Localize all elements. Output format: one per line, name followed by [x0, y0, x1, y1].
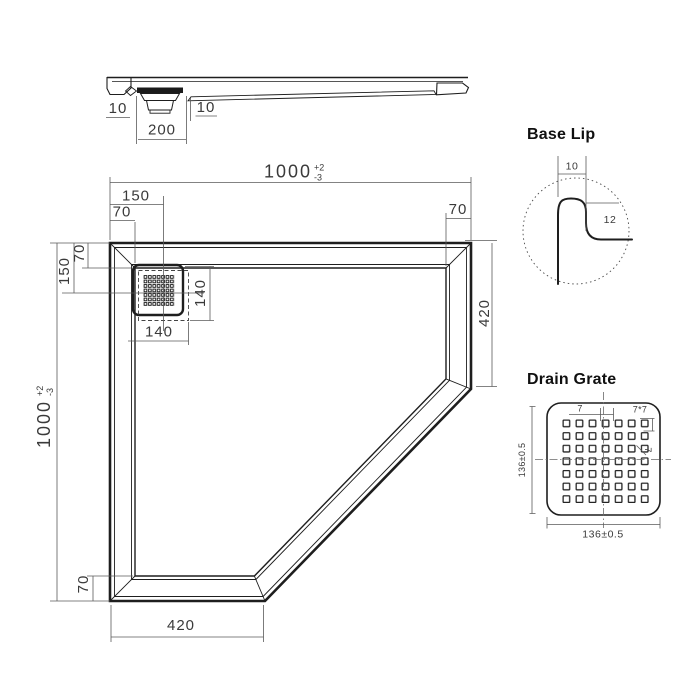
dim-drain-width: 140 — [145, 324, 173, 341]
dim-cross-right-lip: 10 — [197, 99, 216, 116]
base-lip-title: Base Lip — [527, 126, 595, 143]
dim-plan-height-tol-plus: +2 — [35, 386, 45, 396]
dim-base-lip-width: 10 — [566, 161, 579, 173]
cross-section-left-end-block — [107, 78, 131, 95]
drain-trap-seal-band — [137, 88, 183, 94]
drain-grate-plan-grid — [144, 275, 175, 307]
dim-plan-height: 1000 — [34, 400, 54, 448]
cross-section-right-end-block — [437, 83, 469, 95]
base-lip-detail: Base Lip 10 12 — [523, 126, 632, 284]
base-lip-profile — [558, 199, 632, 285]
drain-grate-title: Drain Grate — [527, 371, 616, 388]
dim-grate-width: 136±0.5 — [582, 529, 623, 541]
dim-plan-height-group: 1000 +2 -3 — [34, 386, 55, 448]
dim-plan-width: 1000 — [264, 162, 312, 182]
dim-bottom-edge: 420 — [167, 617, 195, 634]
dim-rim-bottom: 70 — [75, 575, 92, 594]
tray-floor-bevel-edge — [132, 265, 450, 580]
dim-rim-top-right: 70 — [449, 201, 468, 218]
dim-drain-height: 140 — [192, 279, 209, 307]
dim-right-edge: 420 — [476, 299, 493, 327]
cross-section-underside-hatch-band — [188, 91, 436, 101]
dim-grate-height: 136±0.5 — [517, 443, 527, 478]
dim-base-lip-height: 12 — [604, 214, 617, 226]
dim-rim-left: 70 — [71, 244, 88, 263]
dim-cross-drain-width: 200 — [148, 122, 176, 139]
base-lip-detail-circle — [523, 178, 629, 284]
technical-drawing-page: 10 200 10 1000 +2 -3 1000 +2 -3 150 70 7… — [0, 0, 683, 684]
dim-grate-grid-count: 7*7 — [633, 405, 647, 415]
plan-view: 1000 +2 -3 1000 +2 -3 150 70 70 70 150 1… — [34, 162, 497, 643]
dim-plan-width-tol-minus: -3 — [314, 173, 322, 183]
drain-grate-grid — [563, 420, 650, 504]
dim-drain-offset-x: 150 — [122, 188, 150, 205]
dim-grate-pitch: 7 — [577, 404, 582, 414]
dim-plan-width-tol-plus: +2 — [314, 163, 324, 173]
dim-grate-square: 7 — [643, 447, 653, 452]
drain-trap-upper — [141, 94, 180, 101]
dim-rim-top-left: 70 — [113, 204, 132, 221]
dim-plan-height-tol-minus: -3 — [45, 388, 55, 396]
dim-cross-left-lip: 10 — [109, 100, 128, 117]
plan-dimension-lines — [50, 177, 497, 642]
drain-trap-lower — [147, 101, 174, 111]
drain-grate-detail: Drain Grate 7 7*7 7 136±0.5 136±0.5 — [517, 371, 671, 541]
cross-section-view: 10 200 10 — [106, 78, 469, 145]
shower-tray-technical-drawing: 10 200 10 1000 +2 -3 1000 +2 -3 150 70 7… — [0, 0, 683, 684]
dim-drain-offset-y: 150 — [56, 257, 73, 285]
